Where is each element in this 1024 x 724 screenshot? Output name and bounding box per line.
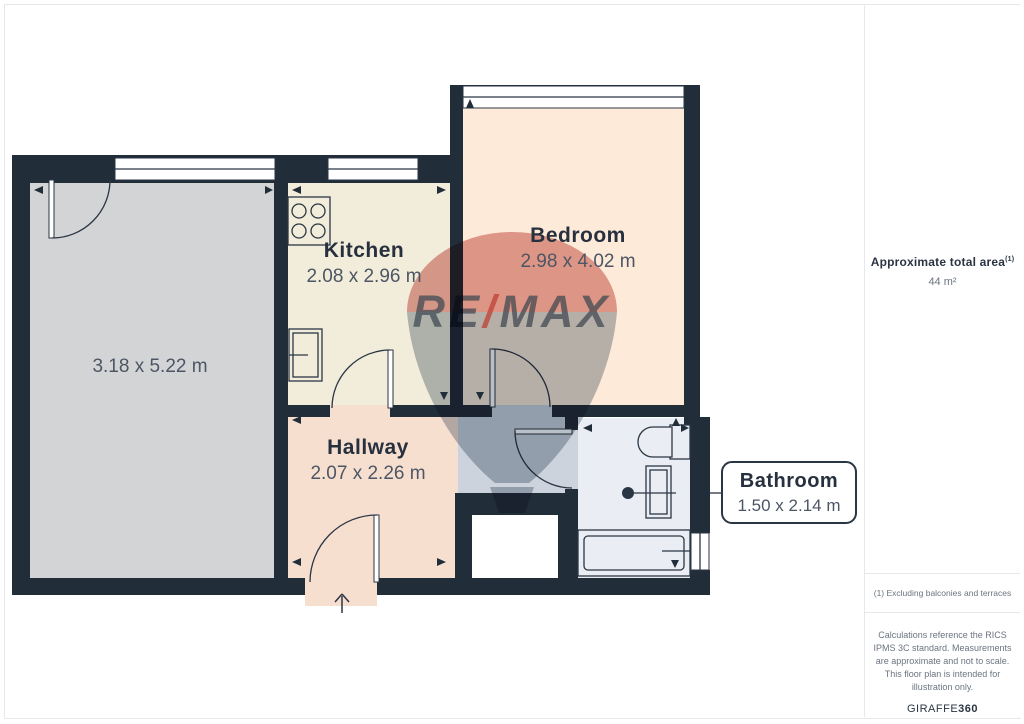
disclaimer-text: Calculations reference the RICS IPMS 3C … bbox=[873, 629, 1012, 694]
bathroom-callout: Bathroom 1.50 x 2.14 m bbox=[710, 462, 856, 523]
bathroom-label: Bathroom bbox=[740, 470, 838, 492]
kitchen-label: Kitchen bbox=[324, 239, 405, 262]
hallway-dimensions: 2.07 x 2.26 m bbox=[310, 463, 425, 484]
info-panel: Approximate total area(1) 44 m² (1) Excl… bbox=[864, 5, 1020, 717]
hallway-label: Hallway bbox=[327, 436, 409, 459]
kitchen-dimensions: 2.08 x 2.96 m bbox=[306, 266, 421, 287]
kitchen-window-icon bbox=[328, 158, 418, 180]
bedroom-window-icon bbox=[463, 86, 684, 108]
giraffe360-logo-text: GIRAFFE bbox=[907, 703, 958, 715]
legal-block: Calculations reference the RICS IPMS 3C … bbox=[865, 617, 1020, 715]
entrance-doorway-gap bbox=[305, 578, 377, 606]
giraffe360-logo-suffix: 360 bbox=[958, 703, 978, 715]
bedroom-label: Bedroom bbox=[530, 224, 626, 247]
bedroom-dimensions: 2.98 x 4.02 m bbox=[520, 251, 635, 272]
total-area-footnote-marker: (1) bbox=[1005, 256, 1014, 263]
total-area-label: Approximate total area(1) bbox=[865, 255, 1020, 269]
stove-icon bbox=[288, 197, 330, 245]
giraffe360-logo: GIRAFFE360 bbox=[873, 703, 1012, 715]
total-area-block: Approximate total area(1) 44 m² bbox=[865, 255, 1020, 288]
bathtub-icon bbox=[578, 530, 690, 576]
bathroom-window-icon bbox=[691, 533, 709, 570]
living-room-window-icon bbox=[115, 158, 275, 180]
kitchen-doorway-gap bbox=[330, 405, 390, 417]
void-shaft bbox=[472, 515, 558, 578]
floorplan-page: RE/MAX 3.18 x 5.22 m bbox=[0, 0, 1024, 724]
footnote-text: (1) Excluding balconies and terraces bbox=[865, 573, 1020, 613]
room-living-room bbox=[30, 183, 274, 578]
kitchen-counter-icon bbox=[289, 329, 322, 381]
remax-watermark-text: RE/MAX bbox=[412, 286, 611, 337]
total-area-value: 44 m² bbox=[865, 276, 1020, 288]
sink-icon bbox=[646, 466, 671, 518]
total-area-label-text: Approximate total area bbox=[871, 255, 1005, 269]
living-room-dimensions: 3.18 x 5.22 m bbox=[92, 356, 207, 377]
bathroom-dimensions: 1.50 x 2.14 m bbox=[737, 496, 840, 515]
